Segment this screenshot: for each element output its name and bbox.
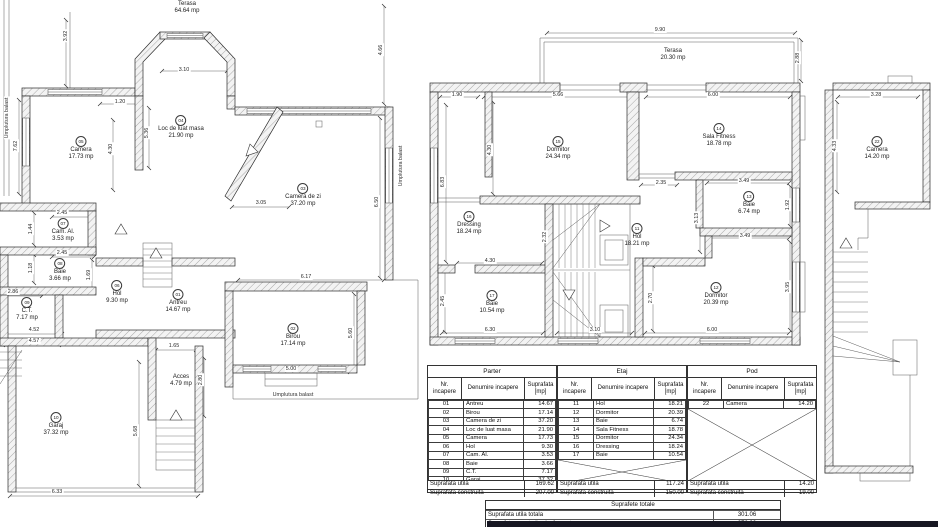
room-name: Baie	[738, 202, 760, 209]
dim-label: 3.92	[63, 30, 69, 43]
room-area: 9.30 mp	[106, 298, 128, 305]
dim-label: 1.18	[28, 262, 34, 275]
col-header-denumire: Denumire incapere	[592, 378, 655, 399]
footer-utila: Suprafata utila 14.20	[688, 480, 816, 489]
table-row: 08Baie3.66	[429, 460, 556, 468]
dim-label: 4.30	[484, 258, 497, 264]
dim-label: 1.65	[168, 343, 181, 349]
dim-label: 6.00	[707, 92, 720, 98]
dim-label: 2.32	[542, 231, 548, 244]
room-number-badge: 01	[173, 289, 184, 300]
room-number-badge: 06	[112, 280, 123, 291]
dim-label: 3.49	[739, 233, 752, 239]
dim-label: 6.00	[706, 327, 719, 333]
room-label-camera-de-zi: 03Camera de zi37.20 mp	[285, 183, 321, 208]
room-number-badge: 08	[55, 258, 66, 269]
room-area: 3.53 mp	[52, 236, 75, 243]
dim-label: 4.30	[487, 144, 493, 157]
col-header-nr: Nr. incapere	[688, 378, 722, 399]
bottom-dark-bar	[487, 521, 938, 527]
room-label-ct: 09C.T.7.17 mp	[16, 297, 38, 322]
dim-label: 5.66	[552, 92, 565, 98]
room-label-baie-13: 13Baie6.74 mp	[738, 191, 760, 216]
dim-label: 2.80	[198, 374, 204, 387]
table-row: 22Camera14.20	[689, 401, 816, 409]
floor-plan-drawing: Terasa64.64 mp 05Camera17.73 mp 04Loc de…	[0, 0, 938, 527]
dim-label: 4.57	[28, 338, 41, 344]
table-row: 06Hol9.30	[429, 443, 556, 451]
table-row: 05Camera17.73	[429, 434, 556, 442]
dim-label: 3.05	[255, 200, 268, 206]
room-label-camera-05: 05Camera17.73 mp	[68, 136, 93, 161]
pod-rows: 22Camera14.20	[689, 401, 816, 409]
room-number-badge: 13	[744, 191, 755, 202]
room-name: Camera de zi	[285, 194, 321, 201]
dim-label: 2.70	[648, 292, 654, 305]
room-name: Hol	[106, 291, 128, 298]
table-row: 16Dressing18.24	[559, 443, 686, 451]
room-label-garaj: 10Garaj37.32 mp	[43, 412, 68, 437]
dim-label: 6.17	[300, 274, 313, 280]
dim-label: 6.83	[440, 176, 446, 189]
table-row: 07Cam. Al.3.53	[429, 451, 556, 459]
room-number-badge: 16	[464, 211, 475, 222]
room-label-antreu: 01Antreu14.67 mp	[165, 289, 190, 314]
room-number-badge: 14	[713, 123, 724, 134]
room-label-dormitor-15: 15Dormitor24.34 mp	[545, 136, 570, 161]
room-label-cam-al: 07Cam. Al.3.53 mp	[52, 218, 75, 243]
table-row: 11Hol18.21	[559, 401, 686, 409]
table-title: Parter	[428, 366, 556, 378]
room-number-badge: 04	[175, 115, 186, 126]
footer-utila: Suprafata utila 117.24	[558, 480, 686, 489]
table-row: 12Dormitor20.39	[559, 409, 686, 417]
dim-label: 3.13	[694, 212, 700, 225]
room-area: 20.30 mp	[660, 55, 685, 62]
room-name: Sala Fitness	[702, 134, 735, 141]
table-row: 17Baie10.54	[559, 451, 686, 459]
room-number-badge: 15	[553, 136, 564, 147]
table-title: Etaj	[558, 366, 686, 378]
room-label-baie-parter: 08Baie3.66 mp	[49, 258, 71, 283]
room-label-acces: Acces4.79 mp	[170, 374, 192, 388]
dim-label: 2.45	[56, 250, 69, 256]
col-header-suprafata: Suprafata [mp]	[525, 378, 556, 399]
room-label-loc-de-luat-masa: 04Loc de luat masa21.90 mp	[158, 115, 204, 140]
room-name: Terasa	[174, 1, 199, 8]
footer-construita: Suprafata construita 207.00	[428, 489, 556, 498]
room-area: 3.66 mp	[49, 276, 71, 283]
area-tables: Parter Nr. incapere Denumire incapere Su…	[427, 365, 817, 494]
room-label-terasa-etaj: Terasa20.30 mp	[660, 48, 685, 62]
room-number-badge: 05	[76, 136, 87, 147]
room-name: Cam. Al.	[52, 229, 75, 236]
dim-label: 2.88	[795, 52, 801, 65]
room-area: 18.24 mp	[456, 229, 481, 236]
room-number-badge: 10	[51, 412, 62, 423]
room-label-dormitor-12: 12Dormitor20.39 mp	[703, 282, 728, 307]
room-name: Dormitor	[703, 293, 728, 300]
room-label-hol-etaj: 11Hol18.21 mp	[624, 223, 649, 248]
room-area: 14.67 mp	[165, 307, 190, 314]
crossed-empty-area	[688, 409, 816, 480]
room-area: 10.54 mp	[479, 308, 504, 315]
dim-label: 6.50	[374, 196, 380, 209]
area-table-parter: Parter Nr. incapere Denumire incapere Su…	[427, 365, 557, 493]
dim-label: 9.90	[654, 27, 667, 33]
dim-label: 6.33	[51, 489, 64, 495]
dim-label: 1.44	[28, 223, 34, 236]
footer-construita: Suprafata construita 150.00	[558, 489, 686, 498]
dim-label: 5.36	[144, 127, 150, 140]
dim-label: 2.45	[56, 210, 69, 216]
room-label-hol-parter: 06Hol9.30 mp	[106, 280, 128, 305]
etaj-rows: 11Hol18.2112Dormitor20.3913Baie6.7414Sal…	[559, 401, 686, 460]
dim-label: 5.00	[285, 366, 298, 372]
dim-label: 1.92	[785, 199, 791, 212]
room-area: 20.39 mp	[703, 300, 728, 307]
room-name: C.T.	[16, 308, 38, 315]
room-name: Terasa	[660, 48, 685, 55]
footer-construita: Suprafata construita 19.00	[688, 489, 816, 498]
room-number-badge: 11	[632, 223, 643, 234]
table-row: 02Birou17.14	[429, 409, 556, 417]
room-name: Dressing	[456, 222, 481, 229]
table-row: 14Sala Fitness18.78	[559, 426, 686, 434]
col-header-denumire: Denumire incapere	[722, 378, 785, 399]
room-number-badge: 09	[22, 297, 33, 308]
dim-label: 3.10	[178, 67, 191, 73]
dim-label: 4.33	[832, 140, 838, 153]
table-row: 13Baie6.74	[559, 417, 686, 425]
room-area: 7.17 mp	[16, 315, 38, 322]
dim-label: 1.69	[86, 269, 92, 282]
fill-label-left: Umplutura balast	[4, 97, 10, 140]
room-area: 37.32 mp	[43, 430, 68, 437]
col-header-suprafata: Suprafata [mp]	[655, 378, 686, 399]
room-name: Acces	[170, 374, 192, 381]
room-area: 37.20 mp	[285, 201, 321, 208]
fill-label-right: Umplutura balast	[398, 145, 404, 188]
room-number-badge: 22	[872, 136, 883, 147]
col-header-suprafata: Suprafata [mp]	[785, 378, 816, 399]
dim-label: 2.86	[7, 289, 20, 295]
dim-label: 3.49	[738, 178, 751, 184]
dim-label: 2.45	[440, 295, 446, 308]
col-header-nr: Nr. incapere	[428, 378, 462, 399]
table-row: 04Loc de luat masa21.90	[429, 426, 556, 434]
room-label-dressing: 16Dressing18.24 mp	[456, 211, 481, 236]
totals-row-utila: Suprafata utila totala 301.06	[486, 510, 780, 519]
room-label-birou: 02Birou17.14 mp	[280, 323, 305, 348]
room-area: 17.14 mp	[280, 341, 305, 348]
room-name: Camera	[864, 147, 889, 154]
dim-label: 5.68	[133, 425, 139, 438]
col-header-denumire: Denumire incapere	[462, 378, 525, 399]
table-row: 09C.T.7.17	[429, 468, 556, 476]
table-row: 15Dormitor24.34	[559, 434, 686, 442]
room-label-terasa-parter: Terasa64.64 mp	[174, 1, 199, 15]
dim-label: 1.20	[114, 99, 127, 105]
room-number-badge: 03	[298, 183, 309, 194]
room-name: Loc de luat masa	[158, 126, 204, 133]
room-name: Birou	[280, 334, 305, 341]
room-label-sala-fitness: 14Sala Fitness18.78 mp	[702, 123, 735, 148]
area-table-pod: Pod Nr. incapere Denumire incapere Supra…	[687, 365, 817, 493]
room-name: Hol	[624, 234, 649, 241]
room-number-badge: 07	[58, 218, 69, 229]
dim-label: 3.28	[870, 92, 883, 98]
room-name: Dormitor	[545, 147, 570, 154]
dim-label: 7.62	[13, 140, 19, 153]
room-area: 21.90 mp	[158, 133, 204, 140]
totals-title: Suprafete totale	[486, 501, 780, 510]
room-name: Baie	[479, 301, 504, 308]
area-table-etaj: Etaj Nr. incapere Denumire incapere Supr…	[557, 365, 687, 493]
room-label-camera-pod: 22Camera14.20 mp	[864, 136, 889, 161]
room-number-badge: 02	[288, 323, 299, 334]
room-name: Baie	[49, 269, 71, 276]
dim-label: 3.95	[785, 281, 791, 294]
room-number-badge: 12	[711, 282, 722, 293]
footer-utila: Suprafata utila 169.62	[428, 480, 556, 489]
room-area: 64.64 mp	[174, 8, 199, 15]
room-area: 4.79 mp	[170, 381, 192, 388]
room-area: 24.34 mp	[545, 154, 570, 161]
fill-label-bottom: Umplutura balast	[272, 392, 315, 398]
dim-label: 3.10	[589, 327, 602, 333]
room-area: 6.74 mp	[738, 209, 760, 216]
table-row: 03Camera de zi37.20	[429, 417, 556, 425]
dim-label: 1.90	[451, 92, 464, 98]
dim-label: 2.35	[655, 180, 668, 186]
room-area: 18.78 mp	[702, 141, 735, 148]
dim-label: 6.30	[484, 327, 497, 333]
room-area: 14.20 mp	[864, 154, 889, 161]
room-area: 18.21 mp	[624, 241, 649, 248]
table-title: Pod	[688, 366, 816, 378]
room-number-badge: 17	[487, 290, 498, 301]
parter-rows: 01Antreu14.6702Birou17.1403Camera de zi3…	[429, 401, 556, 481]
dim-label: 4.52	[28, 327, 41, 333]
room-name: Antreu	[165, 300, 190, 307]
dim-label: 5.60	[348, 327, 354, 340]
dim-label: 4.66	[378, 44, 384, 57]
table-row: 01Antreu14.67	[429, 401, 556, 409]
room-name: Camera	[68, 147, 93, 154]
col-header-nr: Nr. incapere	[558, 378, 592, 399]
room-name: Garaj	[43, 423, 68, 430]
room-area: 17.73 mp	[68, 154, 93, 161]
crossed-empty-area	[558, 460, 686, 480]
dim-label: 4.30	[108, 143, 114, 156]
room-label-baie-17: 17Baie10.54 mp	[479, 290, 504, 315]
